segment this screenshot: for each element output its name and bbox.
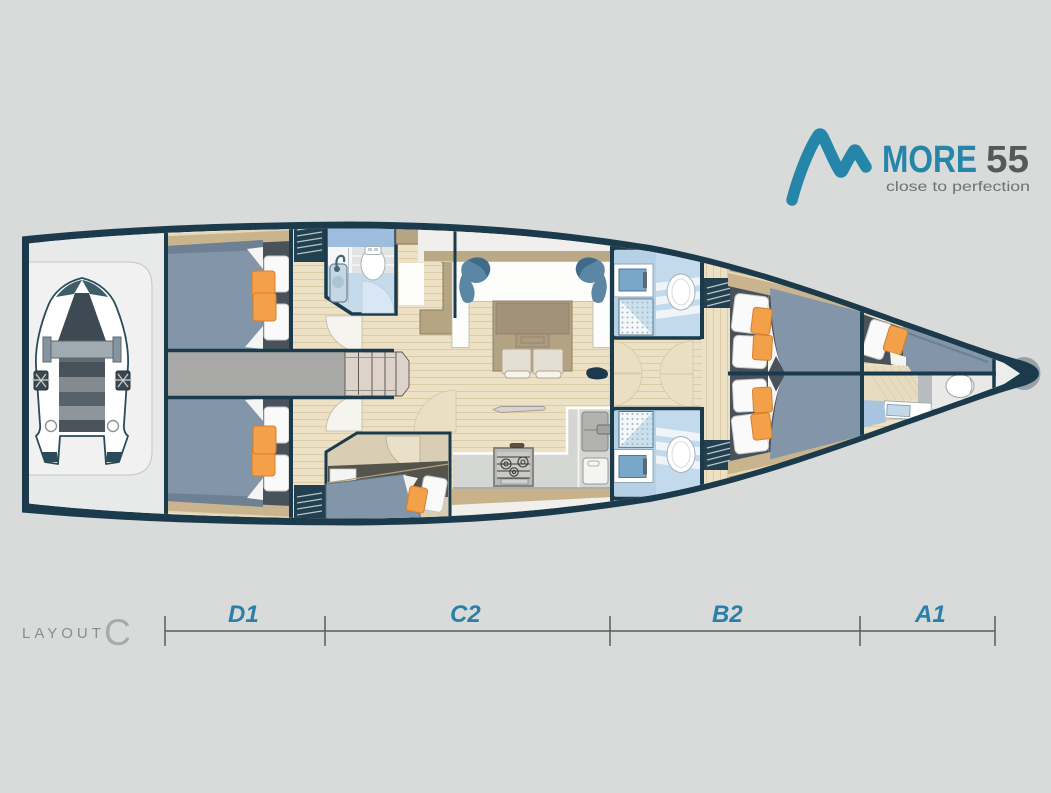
- svg-text:C2: C2: [450, 601, 481, 628]
- svg-text:close to perfection: close to perfection: [886, 179, 1030, 194]
- svg-text:D1: D1: [228, 601, 259, 628]
- svg-text:LAYOUT: LAYOUT: [22, 625, 105, 642]
- svg-text:55: 55: [986, 139, 1029, 181]
- svg-text:C: C: [104, 612, 131, 653]
- svg-text:B2: B2: [712, 601, 743, 628]
- svg-text:MORE: MORE: [882, 139, 977, 181]
- svg-text:A1: A1: [914, 601, 946, 628]
